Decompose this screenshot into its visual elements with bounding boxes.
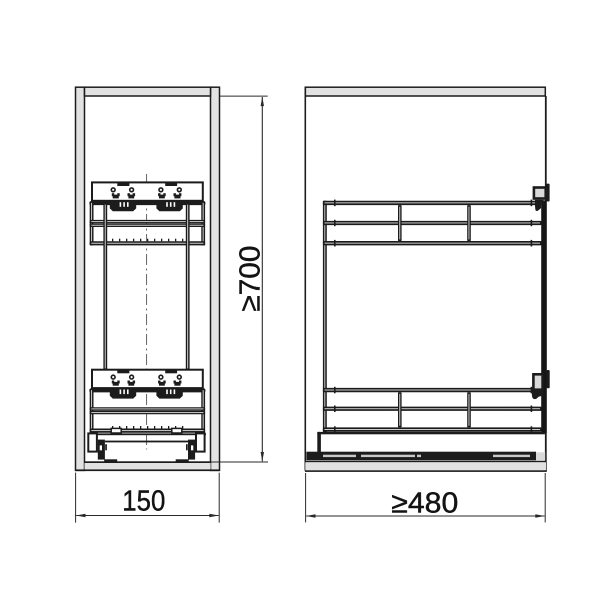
svg-text:≥480: ≥480 [391,487,458,519]
svg-text:150: 150 [122,485,165,517]
svg-text:≥700: ≥700 [235,246,267,312]
